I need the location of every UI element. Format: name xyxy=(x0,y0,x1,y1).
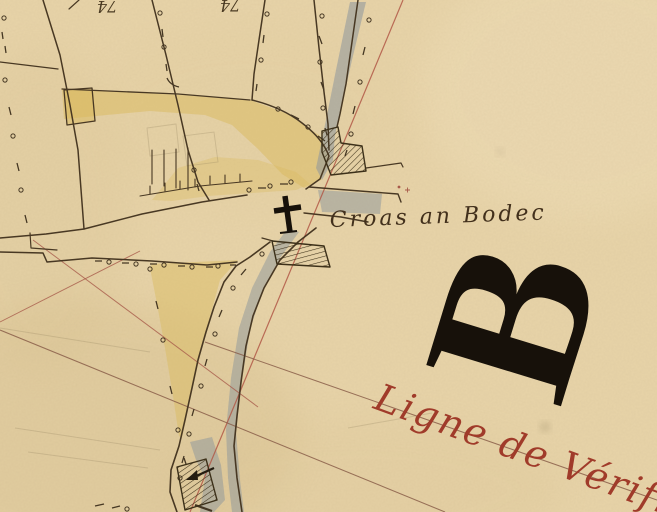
parcel-number-label: 74 xyxy=(97,0,117,16)
cadastral-map-canvas: 74 74 Croas an Bodec B Ligne de Vérifi xyxy=(0,0,657,512)
parcel-number-label: 74 xyxy=(220,0,240,15)
map-drawing: 74 74 Croas an Bodec B Ligne de Vérifi xyxy=(0,0,657,512)
yellow-wash-parcel xyxy=(64,88,95,125)
paper-texture xyxy=(0,0,657,512)
